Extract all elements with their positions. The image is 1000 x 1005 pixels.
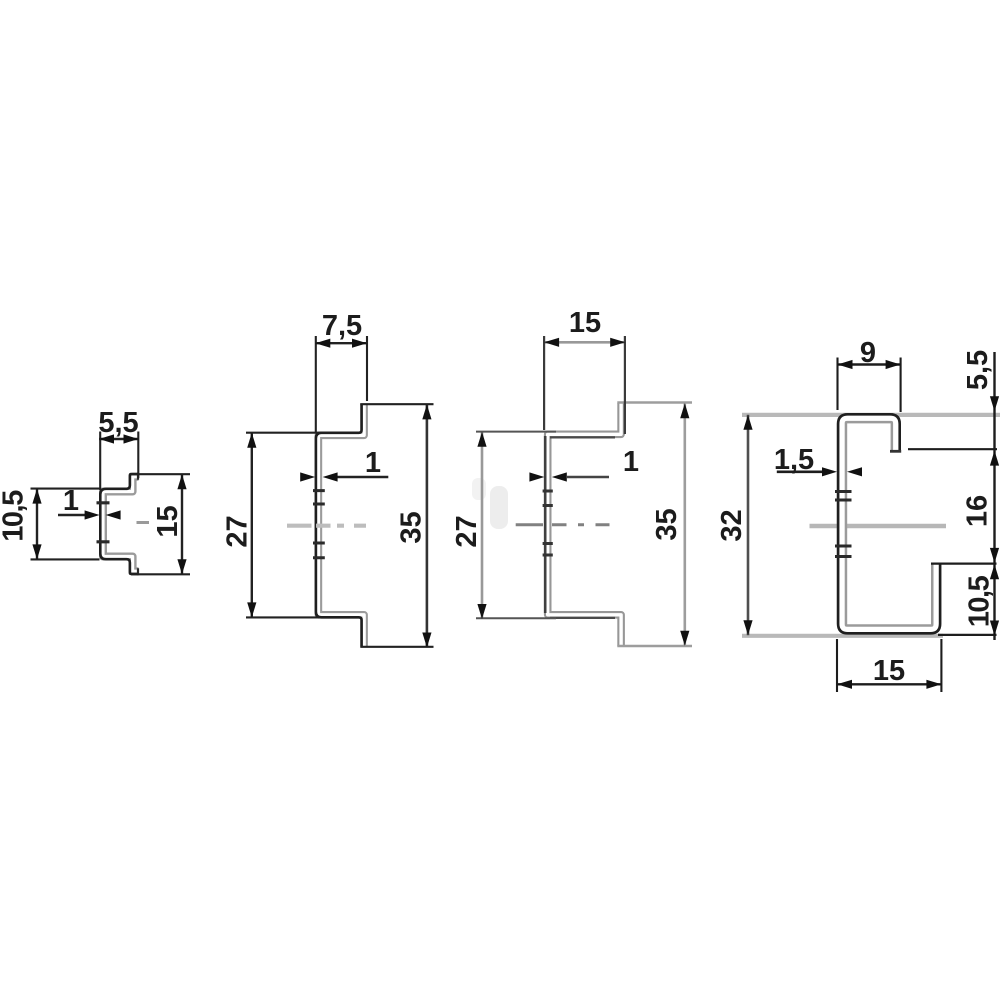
svg-text:15: 15 <box>569 307 601 339</box>
svg-text:32: 32 <box>716 509 748 541</box>
svg-text:7,5: 7,5 <box>322 310 362 342</box>
svg-text:27: 27 <box>451 515 483 547</box>
svg-text:1: 1 <box>63 485 79 517</box>
svg-text:15: 15 <box>873 655 905 687</box>
svg-text:27: 27 <box>222 515 254 547</box>
svg-text:35: 35 <box>396 511 428 543</box>
svg-text:5,5: 5,5 <box>98 407 138 439</box>
svg-text:5,5: 5,5 <box>962 350 994 390</box>
svg-text:1: 1 <box>623 446 639 478</box>
svg-text:35: 35 <box>651 508 683 540</box>
svg-text:10,5: 10,5 <box>963 575 995 627</box>
svg-text:1: 1 <box>365 447 381 479</box>
svg-text:16: 16 <box>962 495 994 527</box>
svg-text:15: 15 <box>152 505 184 537</box>
svg-text:10,5: 10,5 <box>0 490 30 542</box>
